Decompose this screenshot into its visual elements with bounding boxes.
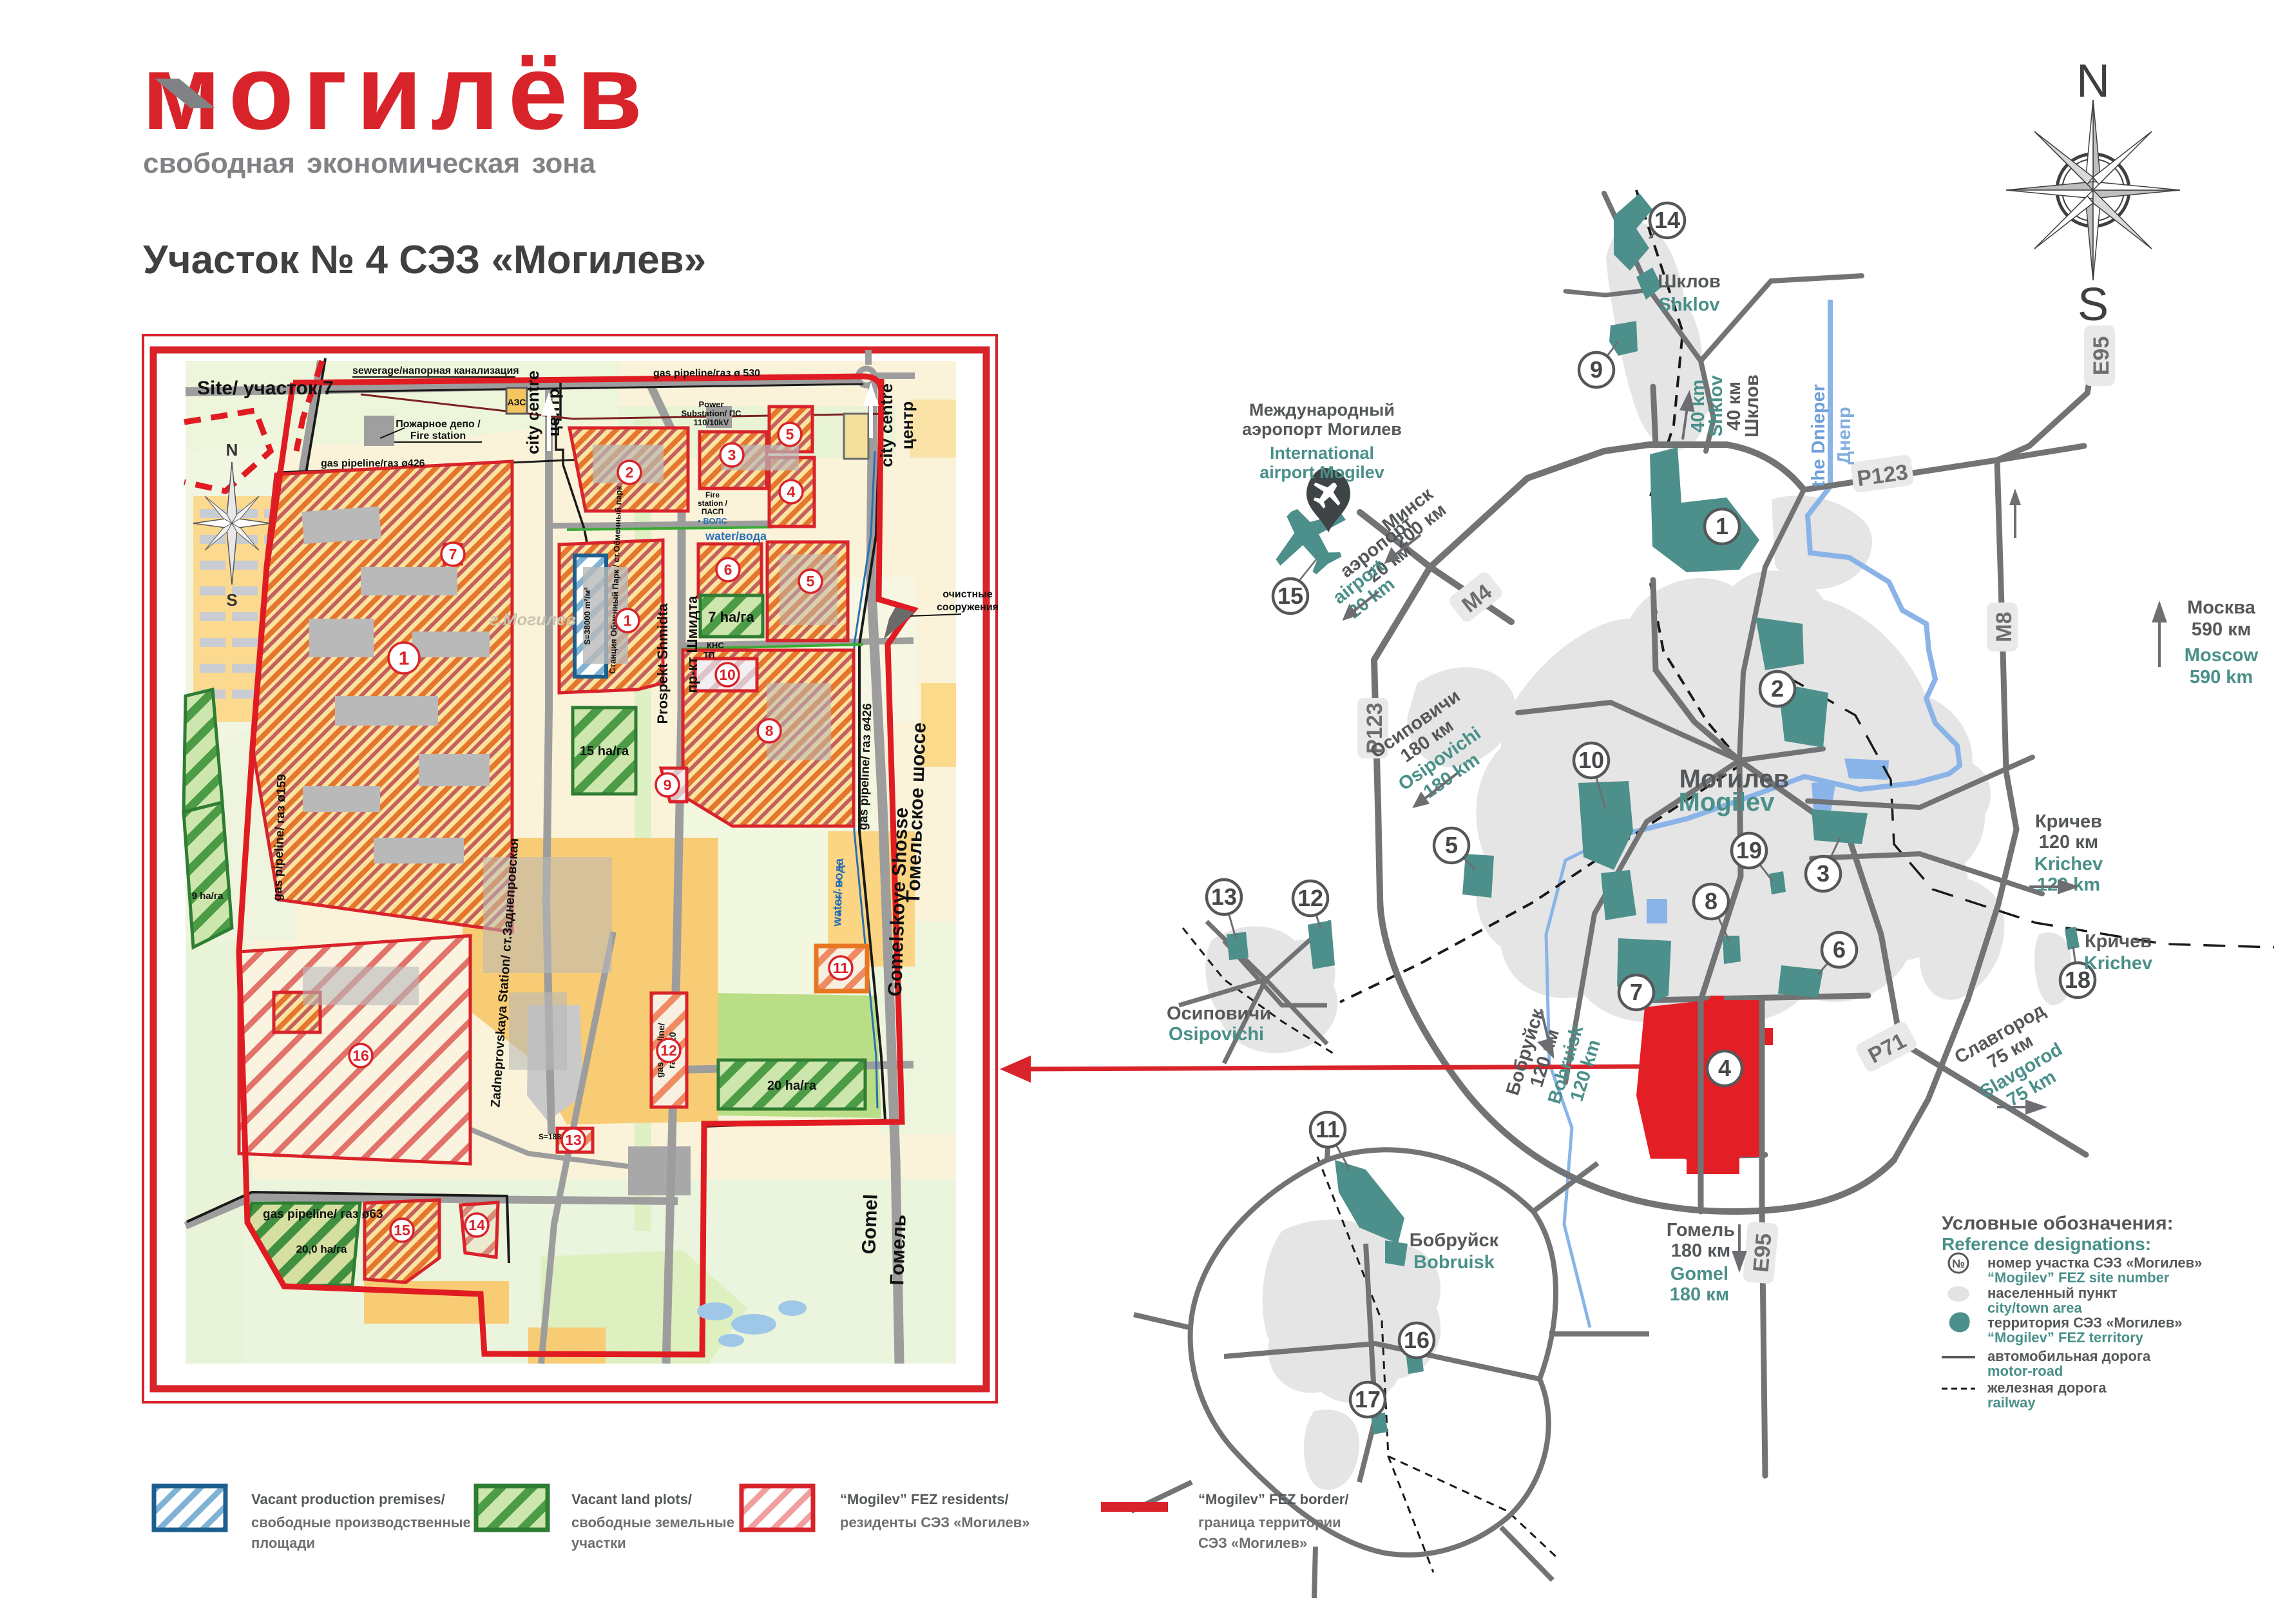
svg-text:“Mogilev” FEZ border/: “Mogilev” FEZ border/: [1198, 1491, 1348, 1507]
svg-text:Substation/ ПС: Substation/ ПС: [681, 409, 741, 418]
svg-text:7 ha/га: 7 ha/га: [708, 609, 754, 625]
svg-text:5: 5: [786, 426, 794, 443]
svg-text:International: International: [1270, 443, 1374, 463]
svg-text:Prospekt Shmidta: Prospekt Shmidta: [655, 603, 671, 724]
svg-text:M8: M8: [1992, 612, 2016, 642]
svg-text:15: 15: [394, 1222, 410, 1239]
svg-text:• ВОЛС: • ВОЛС: [698, 516, 727, 526]
svg-text:Гомель: Гомель: [886, 1214, 910, 1286]
svg-text:gas pipeline/ газ ø63: gas pipeline/ газ ø63: [263, 1208, 383, 1221]
svg-text:station /: station /: [698, 499, 728, 508]
svg-text:4: 4: [1718, 1055, 1731, 1081]
svg-text:3: 3: [1817, 860, 1830, 887]
svg-text:Mogilev: Mogilev: [1679, 788, 1775, 816]
svg-text:120 км: 120 км: [2039, 832, 2098, 853]
svg-text:S=38000 m²/м²: S=38000 m²/м²: [582, 587, 592, 645]
svg-text:14: 14: [468, 1217, 485, 1233]
svg-text:9: 9: [664, 777, 672, 793]
svg-text:10: 10: [1578, 747, 1604, 773]
svg-text:Gomel: Gomel: [858, 1193, 881, 1254]
svg-text:N: N: [226, 440, 238, 459]
svg-text:7: 7: [1630, 979, 1643, 1005]
svg-text:E95: E95: [1748, 1232, 1776, 1273]
svg-text:110/10kV: 110/10kV: [694, 418, 729, 427]
svg-text:20 ha/га: 20 ha/га: [767, 1079, 817, 1093]
svg-text:свободные производственные: свободные производственные: [251, 1514, 471, 1530]
svg-text:номер участка СЭЗ «Могилев»: номер участка СЭЗ «Могилев»: [1987, 1255, 2202, 1271]
svg-text:Gomel: Gomel: [1670, 1264, 1728, 1284]
svg-text:центр: центр: [897, 401, 917, 450]
svg-text:Пожарное депо /: Пожарное депо /: [396, 419, 481, 430]
svg-text:автомобильная дорога: автомобильная дорога: [1987, 1348, 2151, 1364]
svg-text:1: 1: [624, 612, 632, 629]
svg-text:территория СЭЗ «Могилев»: территория СЭЗ «Могилев»: [1987, 1315, 2182, 1331]
svg-text:Осиповичи: Осиповичи: [1167, 1003, 1271, 1024]
svg-text:water/ вода: water/ вода: [830, 858, 847, 927]
svg-text:12: 12: [1297, 885, 1323, 911]
svg-text:Moscow: Moscow: [2185, 645, 2259, 666]
svg-text:city centre: city centre: [523, 371, 542, 454]
svg-text:590 км: 590 км: [2192, 619, 2251, 640]
svg-text:Bobruisk: Bobruisk: [1413, 1252, 1495, 1273]
svg-text:Vacant land plots/: Vacant land plots/: [571, 1491, 692, 1507]
svg-text:590 km: 590 km: [2190, 667, 2253, 688]
svg-text:gas pipeline/газ ø 530: gas pipeline/газ ø 530: [653, 368, 760, 379]
svg-text:15: 15: [1277, 583, 1303, 609]
svg-text:могилёв: могилёв: [142, 33, 651, 152]
svg-text:15 ha/га: 15 ha/га: [580, 744, 629, 758]
svg-text:motor-road: motor-road: [1987, 1363, 2063, 1379]
svg-text:участки: участки: [571, 1535, 626, 1551]
svg-text:10: 10: [719, 666, 736, 683]
svg-text:13: 13: [565, 1132, 582, 1148]
svg-text:180 км: 180 км: [1670, 1284, 1729, 1305]
svg-text:gas pipeline/газ ø426: gas pipeline/газ ø426: [321, 458, 425, 469]
svg-text:“Mogilev” FEZ site number: “Mogilev” FEZ site number: [1987, 1269, 2170, 1286]
svg-text:1: 1: [1716, 513, 1728, 539]
svg-text:Power: Power: [698, 400, 723, 409]
svg-text:8: 8: [1705, 888, 1717, 914]
svg-text:11: 11: [1315, 1116, 1340, 1143]
svg-text:г.Могилев: г.Могилев: [490, 610, 576, 629]
svg-text:№: №: [1952, 1257, 1965, 1270]
svg-text:9: 9: [1590, 356, 1603, 383]
svg-text:резиденты СЭЗ «Могилев»: резиденты СЭЗ «Могилев»: [840, 1514, 1030, 1530]
svg-text:7: 7: [449, 546, 457, 563]
svg-text:13: 13: [1211, 883, 1237, 910]
svg-text:Shklov: Shklov: [1658, 294, 1719, 315]
svg-text:sewerage/напорная канализация: sewerage/напорная канализация: [352, 365, 519, 376]
svg-text:населенный пункт: населенный пункт: [1987, 1285, 2118, 1301]
svg-text:Днепр: Днепр: [1834, 407, 1855, 465]
svg-text:ПАСП: ПАСП: [702, 507, 723, 516]
svg-text:2: 2: [1771, 675, 1784, 702]
svg-text:сооружения: сооружения: [937, 602, 999, 613]
svg-text:площади: площади: [251, 1535, 315, 1551]
svg-text:граница территории: граница территории: [1198, 1514, 1341, 1530]
svg-text:N: N: [2076, 55, 2110, 107]
svg-text:city/town area: city/town area: [1987, 1300, 2082, 1316]
svg-text:1: 1: [399, 648, 410, 670]
svg-text:airport Mogilev: airport Mogilev: [1259, 463, 1384, 482]
svg-text:Кричев: Кричев: [2085, 931, 2152, 952]
svg-text:the Dnieper: the Dnieper: [1808, 384, 1829, 487]
svg-text:Кричев: Кричев: [2035, 811, 2102, 832]
svg-text:8: 8: [765, 722, 774, 739]
svg-text:20,0 ha/га: 20,0 ha/га: [296, 1243, 347, 1255]
svg-text:Гомель: Гомель: [1667, 1220, 1735, 1240]
svg-text:Москва: Москва: [2187, 597, 2256, 618]
svg-text:E95: E95: [2089, 336, 2114, 376]
svg-text:Международный: Международный: [1249, 400, 1395, 420]
svg-text:6: 6: [724, 561, 732, 578]
svg-text:Бобруйск: Бобруйск: [1410, 1230, 1499, 1251]
svg-text:Shklov: Shklov: [1706, 375, 1727, 436]
svg-text:16: 16: [352, 1047, 369, 1064]
svg-text:“Mogilev” FEZ territory: “Mogilev” FEZ territory: [1987, 1329, 2144, 1346]
svg-text:Osipovichi: Osipovichi: [1169, 1024, 1264, 1045]
svg-text:аэропорт Могилев: аэропорт Могилев: [1242, 420, 1402, 439]
svg-text:ТП: ТП: [703, 650, 714, 660]
svg-text:S: S: [2078, 279, 2109, 331]
svg-text:17: 17: [1355, 1386, 1381, 1413]
svg-text:Fire: Fire: [705, 490, 720, 499]
svg-text:5: 5: [1445, 832, 1458, 858]
svg-text:11: 11: [833, 960, 849, 976]
svg-text:Vacant production premises/: Vacant production premises/: [251, 1491, 445, 1507]
svg-text:Krichev: Krichev: [2084, 953, 2152, 974]
svg-text:Reference designations:: Reference designations:: [1942, 1234, 2151, 1254]
svg-text:пр-кт Шмидта: пр-кт Шмидта: [684, 595, 700, 693]
svg-text:12: 12: [660, 1042, 677, 1059]
svg-text:очистные: очистные: [942, 589, 993, 600]
svg-text:16: 16: [1404, 1327, 1430, 1353]
svg-text:Условные обозначения:: Условные обозначения:: [1942, 1213, 2174, 1234]
svg-text:железная дорога: железная дорога: [1987, 1380, 2107, 1396]
svg-text:6: 6: [1833, 936, 1846, 963]
svg-text:4: 4: [787, 483, 796, 500]
svg-text:water/вода: water/вода: [705, 530, 767, 543]
svg-text:railway: railway: [1987, 1395, 2036, 1411]
svg-text:Krichev: Krichev: [2034, 854, 2103, 874]
svg-text:S: S: [226, 590, 237, 610]
svg-text:Шклов: Шклов: [1658, 271, 1721, 292]
svg-text:40 км: 40 км: [1724, 381, 1745, 430]
svg-text:city centre: city centre: [877, 383, 896, 467]
svg-text:Fire station: Fire station: [410, 430, 466, 441]
svg-text:Шклов: Шклов: [1742, 374, 1763, 438]
svg-text:9 ha/га: 9 ha/га: [192, 891, 224, 902]
svg-text:“Mogilev” FEZ residents/: “Mogilev” FEZ residents/: [840, 1491, 1009, 1507]
svg-text:19: 19: [1736, 837, 1762, 864]
svg-text:свободная экономическая зона: свободная экономическая зона: [143, 148, 596, 179]
svg-text:180 км: 180 км: [1671, 1240, 1730, 1261]
svg-text:свободные земельные: свободные земельные: [571, 1514, 734, 1530]
svg-text:14: 14: [1654, 207, 1680, 233]
svg-text:КНС: КНС: [707, 641, 724, 650]
svg-text:3: 3: [728, 447, 736, 463]
svg-text:2: 2: [626, 464, 634, 481]
svg-text:Участок № 4 СЭЗ «Могилев»: Участок № 4 СЭЗ «Могилев»: [143, 238, 706, 282]
svg-text:5: 5: [807, 573, 815, 590]
svg-text:СЭЗ «Могилев»: СЭЗ «Могилев»: [1198, 1535, 1307, 1551]
svg-text:Site/ участок 7: Site/ участок 7: [197, 378, 334, 399]
